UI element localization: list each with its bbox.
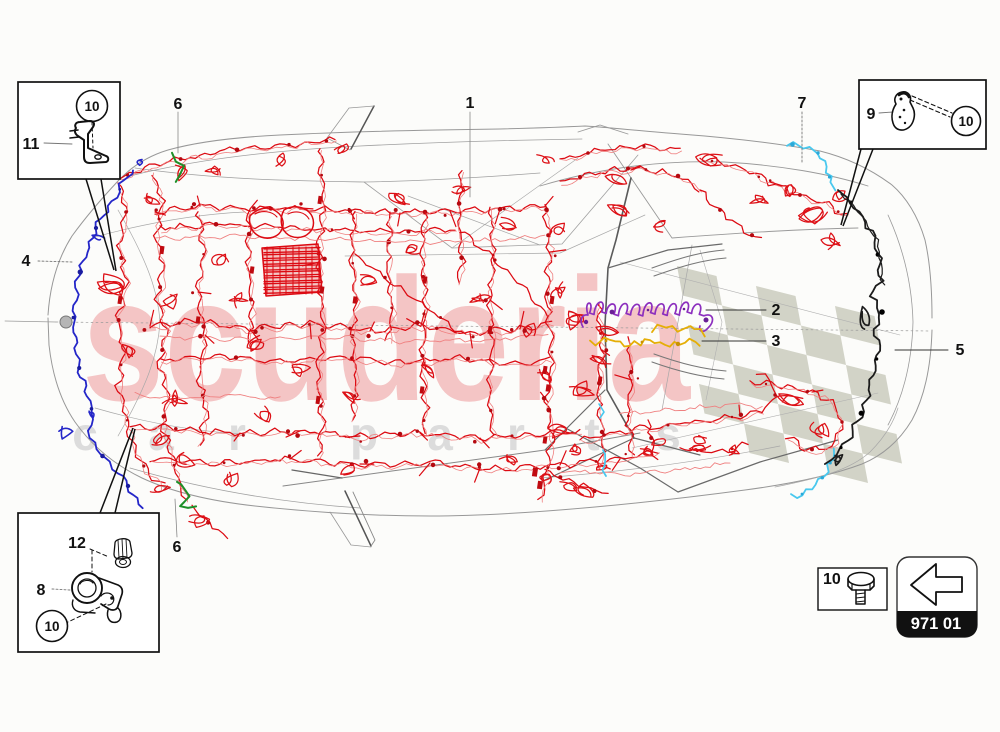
svg-text:1: 1: [466, 95, 475, 112]
svg-text:10: 10: [958, 114, 973, 129]
svg-text:12: 12: [68, 535, 86, 552]
svg-text:10: 10: [84, 99, 99, 114]
svg-text:9: 9: [867, 106, 876, 123]
svg-text:971 01: 971 01: [911, 615, 961, 633]
svg-text:s: s: [655, 408, 681, 460]
svg-text:3: 3: [772, 333, 781, 350]
svg-text:5: 5: [956, 342, 965, 359]
svg-text:8: 8: [37, 582, 46, 599]
svg-text:6: 6: [173, 539, 182, 556]
svg-text:6: 6: [174, 96, 183, 113]
svg-text:4: 4: [22, 253, 31, 270]
svg-text:7: 7: [798, 95, 807, 112]
svg-text:11: 11: [23, 136, 40, 153]
svg-text:10: 10: [44, 619, 59, 634]
svg-text:10: 10: [823, 571, 841, 588]
svg-text:2: 2: [772, 302, 781, 319]
